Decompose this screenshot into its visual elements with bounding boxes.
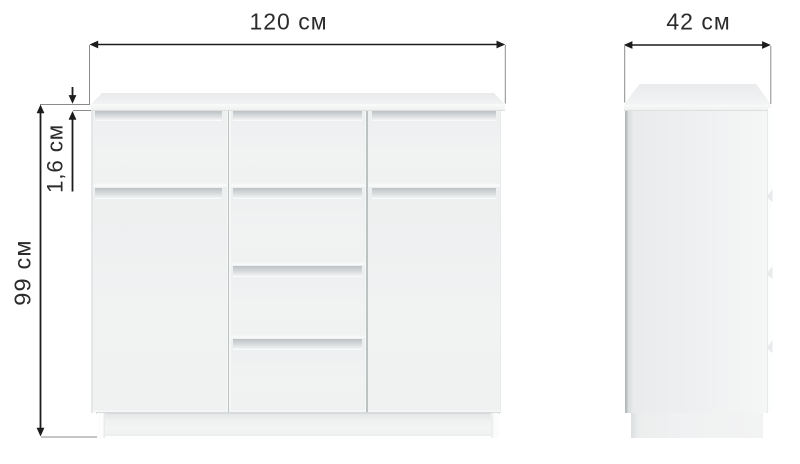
svg-text:120 см: 120 см — [249, 9, 327, 35]
svg-text:99 см: 99 см — [10, 239, 36, 306]
svg-text:1,6 см: 1,6 см — [43, 124, 68, 193]
svg-text:42 см: 42 см — [666, 9, 730, 35]
